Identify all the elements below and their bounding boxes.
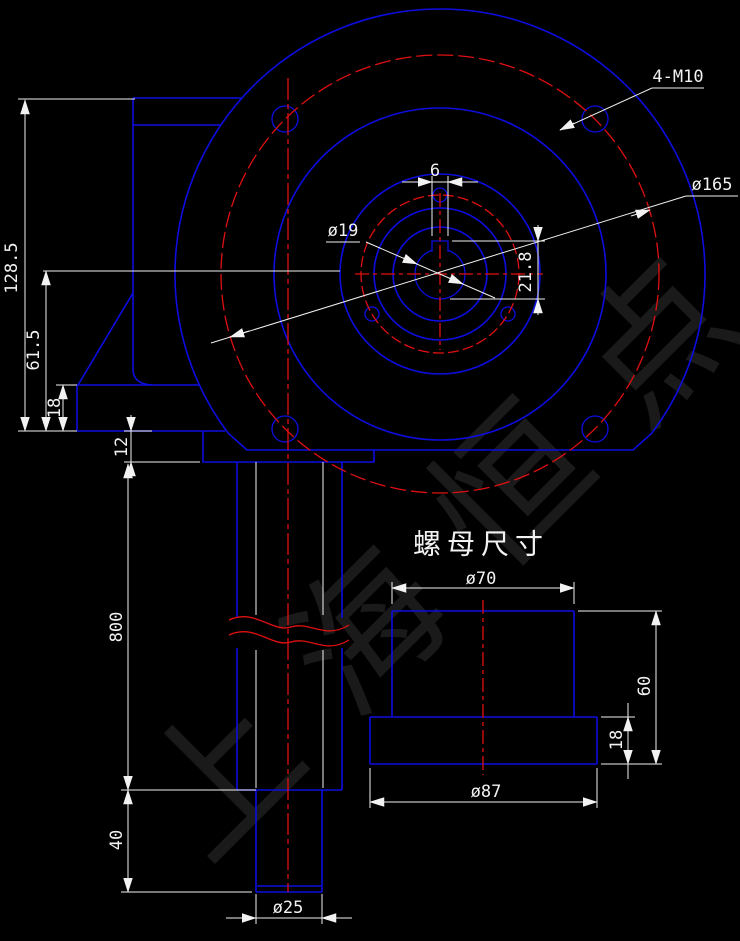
dim-nut-total-height: 60 <box>635 676 655 696</box>
dim-center-height: 61.5 <box>24 330 44 371</box>
dim-bolt-circle-diameter: ø165 <box>692 175 733 195</box>
dim-nut-outer-diameter: ø70 <box>466 569 497 589</box>
dim-nut-flange-diameter: ø87 <box>471 782 502 802</box>
dim-screw-end-length: 40 <box>107 830 127 850</box>
dim-bolt-holes: 4-M10 <box>652 67 703 87</box>
dim-base-plate-thickness: 18 <box>45 398 65 418</box>
dim-nut-flange-thickness: 18 <box>607 730 627 750</box>
dim-overall-height: 128.5 <box>2 242 22 293</box>
nut-view-title: 螺母尺寸 <box>413 528 549 561</box>
cad-engineering-drawing: 上海恒点 <box>0 0 740 941</box>
dim-screw-length: 800 <box>107 612 127 643</box>
dim-screw-end-diameter: ø25 <box>273 898 304 918</box>
dim-input-bore-diameter: ø19 <box>328 221 359 241</box>
dim-keyway-width: 6 <box>430 161 440 181</box>
dim-bottom-flange-thickness: 12 <box>112 437 132 457</box>
dim-keyway-height: 21.8 <box>516 252 536 293</box>
